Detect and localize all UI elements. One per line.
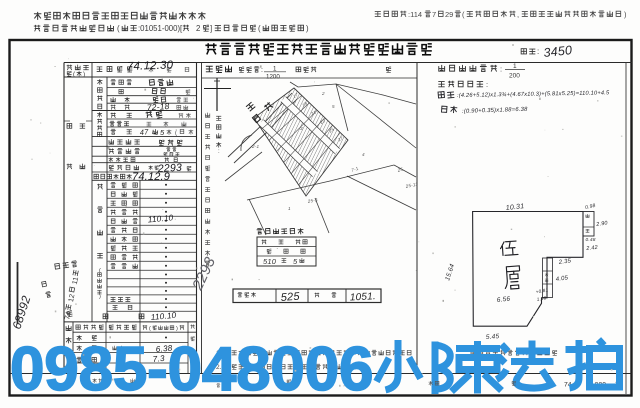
svg-text:5: 5 [332,104,335,109]
svg-text::01051-000)[: :01051-000)[ [138,24,183,33]
svg-text:2: 2 [321,91,325,96]
svg-text:1: 1 [513,63,517,70]
svg-text:): ) [176,326,178,332]
svg-text:4: 4 [362,152,365,157]
svg-text:(: ( [149,326,151,332]
svg-text:0985-048006: 0985-048006 [10,335,373,404]
svg-text:7: 7 [432,10,436,19]
svg-text:1200: 1200 [266,73,280,80]
svg-text:6.56: 6.56 [496,296,510,304]
svg-text::: : [261,67,263,74]
svg-text:2: 2 [196,24,200,33]
svg-text:): ) [306,24,309,33]
svg-text:5: 5 [293,257,298,266]
svg-text:47: 47 [139,127,149,137]
svg-text:1: 1 [273,66,277,73]
svg-text::: : [486,80,488,89]
svg-text::114: :114 [408,10,422,19]
svg-text:): ) [99,294,101,300]
svg-text:1: 1 [288,206,291,211]
svg-text:2-1: 2-1 [251,144,259,149]
svg-text:(: ( [117,24,120,33]
svg-text:525: 525 [280,291,300,304]
svg-text:72-18: 72-18 [146,101,169,113]
svg-text::: : [537,47,539,56]
svg-text:,: , [517,10,519,19]
svg-text:3450: 3450 [543,43,573,60]
svg-text:1051.: 1051. [350,291,377,303]
svg-text:]: ] [210,24,212,33]
svg-text:3: 3 [300,126,303,131]
svg-text:5.45: 5.45 [486,333,500,341]
svg-text:(: ( [258,24,261,33]
svg-text:29: 29 [445,10,453,19]
svg-text:0.48: 0.48 [586,237,596,243]
svg-text:510: 510 [263,257,277,266]
svg-text:200: 200 [509,73,520,80]
svg-text::: : [500,65,502,74]
svg-text:74.12.30: 74.12.30 [127,59,174,73]
svg-text:(: ( [175,131,177,137]
svg-text:): ) [83,71,85,78]
svg-text:74.12.9: 74.12.9 [132,171,170,183]
svg-text:5: 5 [160,128,165,137]
